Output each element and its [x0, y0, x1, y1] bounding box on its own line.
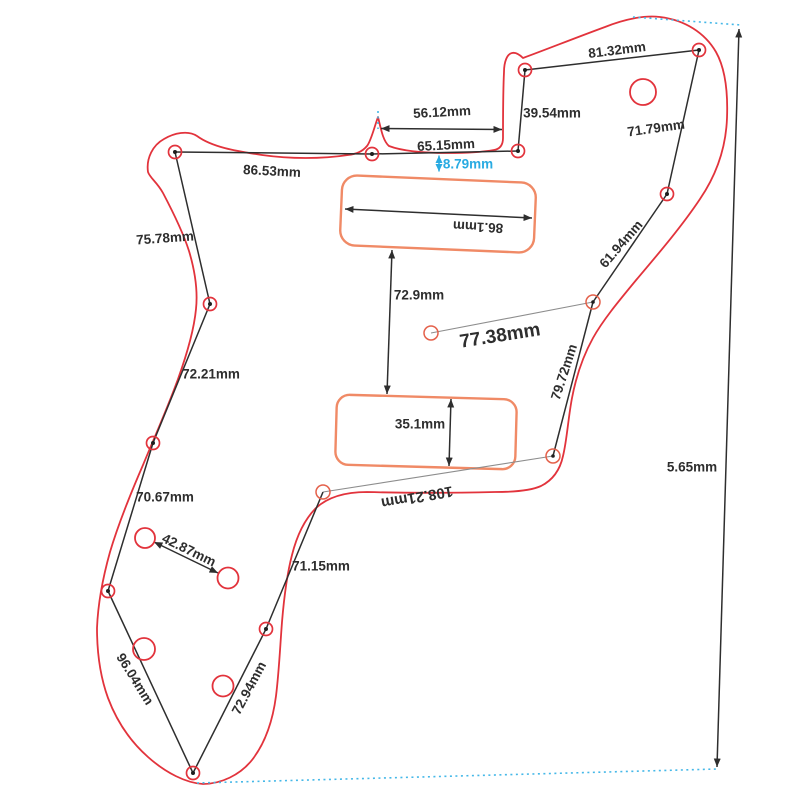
dim-label-right-edge-upper: 61.94mm [596, 217, 645, 270]
dim-label-neck-notch-width: 56.12mm [413, 103, 472, 121]
pot-hole-marker [218, 568, 239, 589]
dim-line-bottom-right-edge [193, 629, 266, 773]
pot-hole-marker [133, 638, 155, 660]
arrow-bridge-pickup-height [449, 399, 451, 466]
dim-label-bridge-pickup-height: 35.1mm [395, 417, 445, 432]
dim-label-pickup-distance: 77.38mm [458, 319, 542, 352]
dim-label-left-edge-upper: 75.78mm [136, 229, 195, 248]
dim-line-right-edge-upper [593, 194, 667, 302]
junction-dots [106, 48, 701, 775]
dimension-lines [108, 50, 699, 773]
dim-label-neck-offset: 8.79mm [443, 157, 493, 172]
dim-label-bottom-right-edge: 72.94mm [229, 659, 269, 717]
arrow-neck-notch-width [381, 129, 502, 130]
dim-label-bridge-edge: 108.21mm [380, 482, 454, 511]
dim-line-top-edge [175, 152, 372, 154]
dim-label-left-edge-lower: 70.67mm [136, 490, 194, 505]
pot-hole-marker [630, 79, 656, 105]
dim-line-bottom-left-edge [108, 591, 193, 773]
dim-label-neck-edge: 65.15mm [417, 136, 476, 154]
dim-label-pot-spacing: 42.87mm [160, 531, 219, 570]
arrow-neck-pickup-width [345, 209, 532, 218]
pickguard-diagram: 86.53mm 56.12mm 65.15mm 8.79mm 39.54mm 8… [0, 0, 800, 800]
dim-label-side-offset: 5.65mm [667, 460, 717, 475]
bridge-pickup-cutout [335, 395, 517, 470]
dim-label-pickup-gap: 72.9mm [394, 288, 444, 303]
dim-label-neck-pickup-width: 86.1mm [452, 218, 503, 236]
dim-label-top-edge: 86.53mm [243, 162, 302, 180]
dim-line-left-edge-lower [108, 443, 153, 591]
bottom-reference-dotted-line [197, 769, 718, 783]
dim-label-notch-height: 39.54mm [523, 106, 581, 121]
dim-label-left-edge-mid: 72.21mm [182, 367, 240, 382]
pot-holes [133, 79, 656, 697]
top-reference-dotted-line [633, 17, 741, 25]
arrow-pickup-gap [387, 250, 392, 394]
drawing-canvas: 86.53mm 56.12mm 65.15mm 8.79mm 39.54mm 8… [0, 0, 800, 800]
dim-label-lower-right-edge: 71.15mm [292, 559, 350, 574]
pot-hole-marker [213, 676, 234, 697]
arrow-side-offset [717, 29, 739, 767]
dim-label-upper-right-edge: 71.79mm [626, 117, 685, 140]
pot-hole-marker [135, 528, 155, 548]
